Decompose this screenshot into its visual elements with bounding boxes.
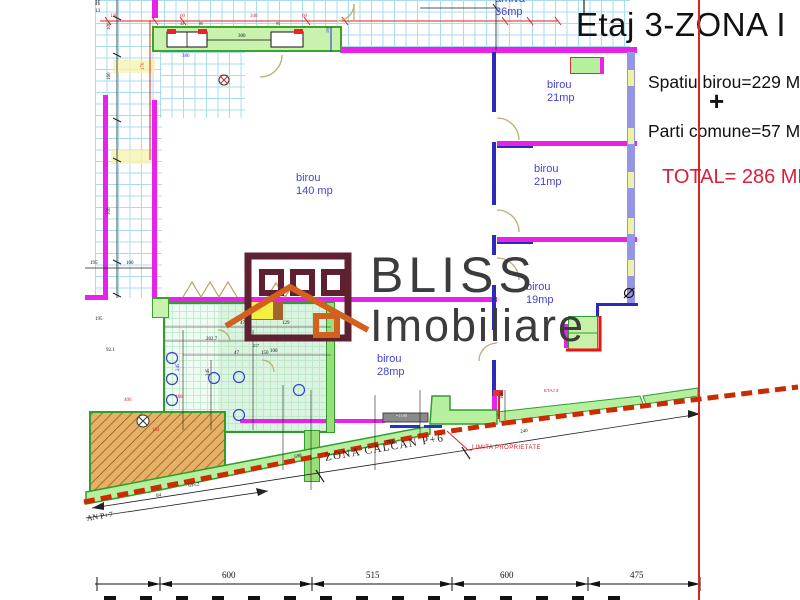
plus-sign: + — [709, 86, 724, 117]
bliss-logo-icon — [222, 250, 382, 350]
page-title: Etaj 3-ZONA I — [576, 6, 786, 44]
red-margin-line — [698, 0, 700, 600]
area-total-line: TOTAL= 286 MP — [662, 166, 800, 189]
watermark-brand2: Imobiliare — [370, 300, 585, 352]
watermark-brand: BLISS — [370, 246, 537, 304]
floor-plan-canvas: arhiva 36mp birou 21mp birou 21mp birou … — [0, 0, 800, 600]
area-common-line: Parti comune=57 MP — [648, 121, 800, 142]
